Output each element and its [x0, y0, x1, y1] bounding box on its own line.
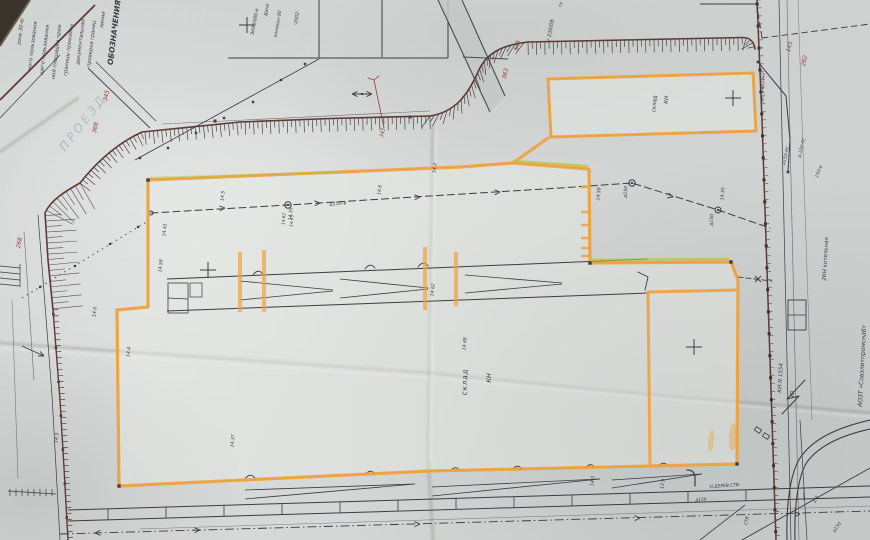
benchmark-label: 282 [801, 54, 809, 66]
map-label: 14.35 [288, 214, 294, 227]
benchmark-label: 145 [786, 40, 794, 52]
map-label: 150-в [814, 164, 824, 178]
legend-line: проверка границ [86, 20, 98, 68]
map-label: 14.48 [461, 337, 468, 351]
map-label: 13.9 [660, 478, 667, 489]
map-label: т 230/08. [546, 18, 556, 42]
benchmark-label: 345 [103, 89, 111, 101]
benchmark-label: 368 [92, 121, 100, 133]
map-label: д-100-РС [796, 136, 808, 159]
map-label: Н.ДЕРЕВ.СТВ. [709, 482, 740, 490]
map-label: 14.5 [590, 475, 597, 486]
map-label: 14.2 [432, 162, 439, 173]
plan-drawing: зоне 30-юного пользованиящего пользовани… [0, 0, 870, 540]
map-label: 14.6 [377, 184, 384, 195]
map-label: -2002- [293, 10, 302, 26]
benchmark-label: 345 [514, 39, 522, 51]
legend-line: документальная [75, 19, 87, 66]
map-label: КН N 1554 [777, 362, 785, 392]
map-label: д150 [708, 214, 715, 227]
map-label: 14.58 [595, 187, 602, 201]
site-plan-photo: зоне 30-юного пользованиящего пользовани… [0, 0, 870, 540]
map-label: 14.5 [220, 190, 227, 201]
map-label: 14.6 [92, 306, 99, 317]
map-label: Дани [263, 3, 271, 17]
map-label: 14.62 [429, 283, 436, 297]
map-label: 14.62 [280, 212, 286, 225]
map-label: 14.37 [229, 434, 236, 448]
map-label: конюшн-80 [273, 10, 284, 38]
map-label: ПРОЕЗД [56, 91, 109, 153]
legend-line: границы промзоны [63, 23, 75, 76]
legend-line: зоне 30-ю [16, 17, 25, 45]
map-label: склад [461, 368, 470, 395]
map-label: 14.41 [161, 223, 168, 237]
map-label: 2КН котельная [822, 236, 830, 281]
photo-corner [0, 0, 30, 46]
benchmark-label: 268 [16, 236, 24, 248]
map-label: КН [485, 373, 493, 383]
map-label: АОЗТ «Совэлитпромснабт [857, 324, 868, 408]
map-label: д150 [622, 186, 629, 199]
map-label: ЭК80/080-в [250, 8, 261, 37]
map-label: Ю [790, 391, 796, 397]
map-label: СТВ [743, 516, 750, 526]
legend-line: ной площадки пром [51, 24, 64, 79]
legend-line: линии [99, 11, 107, 30]
legend-line: ОБОЗНАЧЕНИЯ : [106, 0, 124, 65]
map-label: 14.35 [719, 187, 726, 201]
map-label: заб. р-003-№2 [759, 72, 766, 103]
map-label: д150 [831, 521, 843, 535]
map-label: та [559, 2, 565, 8]
benchmark-label: 363 [502, 67, 510, 79]
map-label: КН [664, 96, 671, 105]
map-label: 14.4 [126, 346, 133, 357]
map-label: 14.3 [54, 432, 61, 443]
benchmark-label: 343 [379, 127, 387, 138]
map-label: 14.58 [157, 259, 164, 273]
map-label: д150 [694, 497, 707, 504]
